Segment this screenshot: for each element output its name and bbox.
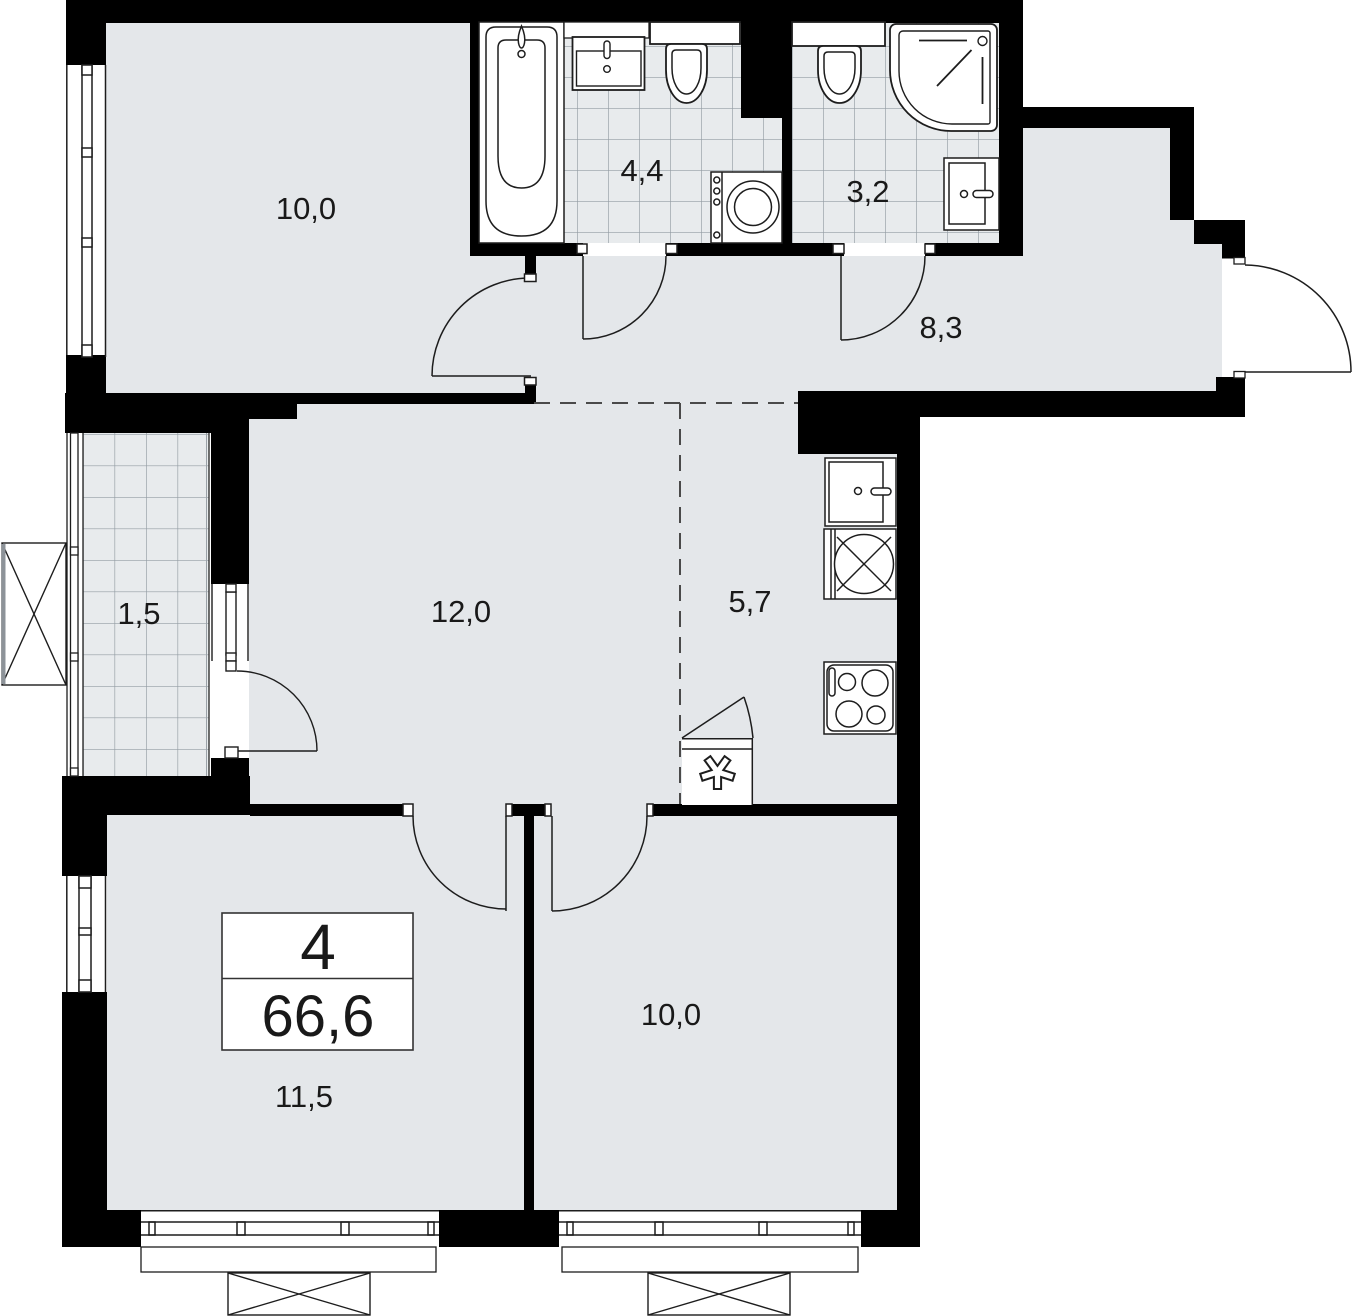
svg-text:1,5: 1,5 (117, 596, 160, 631)
svg-text:10,0: 10,0 (641, 997, 701, 1032)
svg-text:3,2: 3,2 (846, 174, 889, 209)
svg-text:4,4: 4,4 (620, 153, 663, 188)
svg-text:66,6: 66,6 (262, 984, 375, 1049)
svg-text:11,5: 11,5 (275, 1079, 333, 1114)
svg-text:8,3: 8,3 (919, 310, 962, 345)
svg-text:10,0: 10,0 (276, 191, 336, 226)
svg-text:5,7: 5,7 (728, 584, 771, 619)
svg-text:4: 4 (300, 911, 336, 983)
svg-text:12,0: 12,0 (431, 594, 491, 629)
